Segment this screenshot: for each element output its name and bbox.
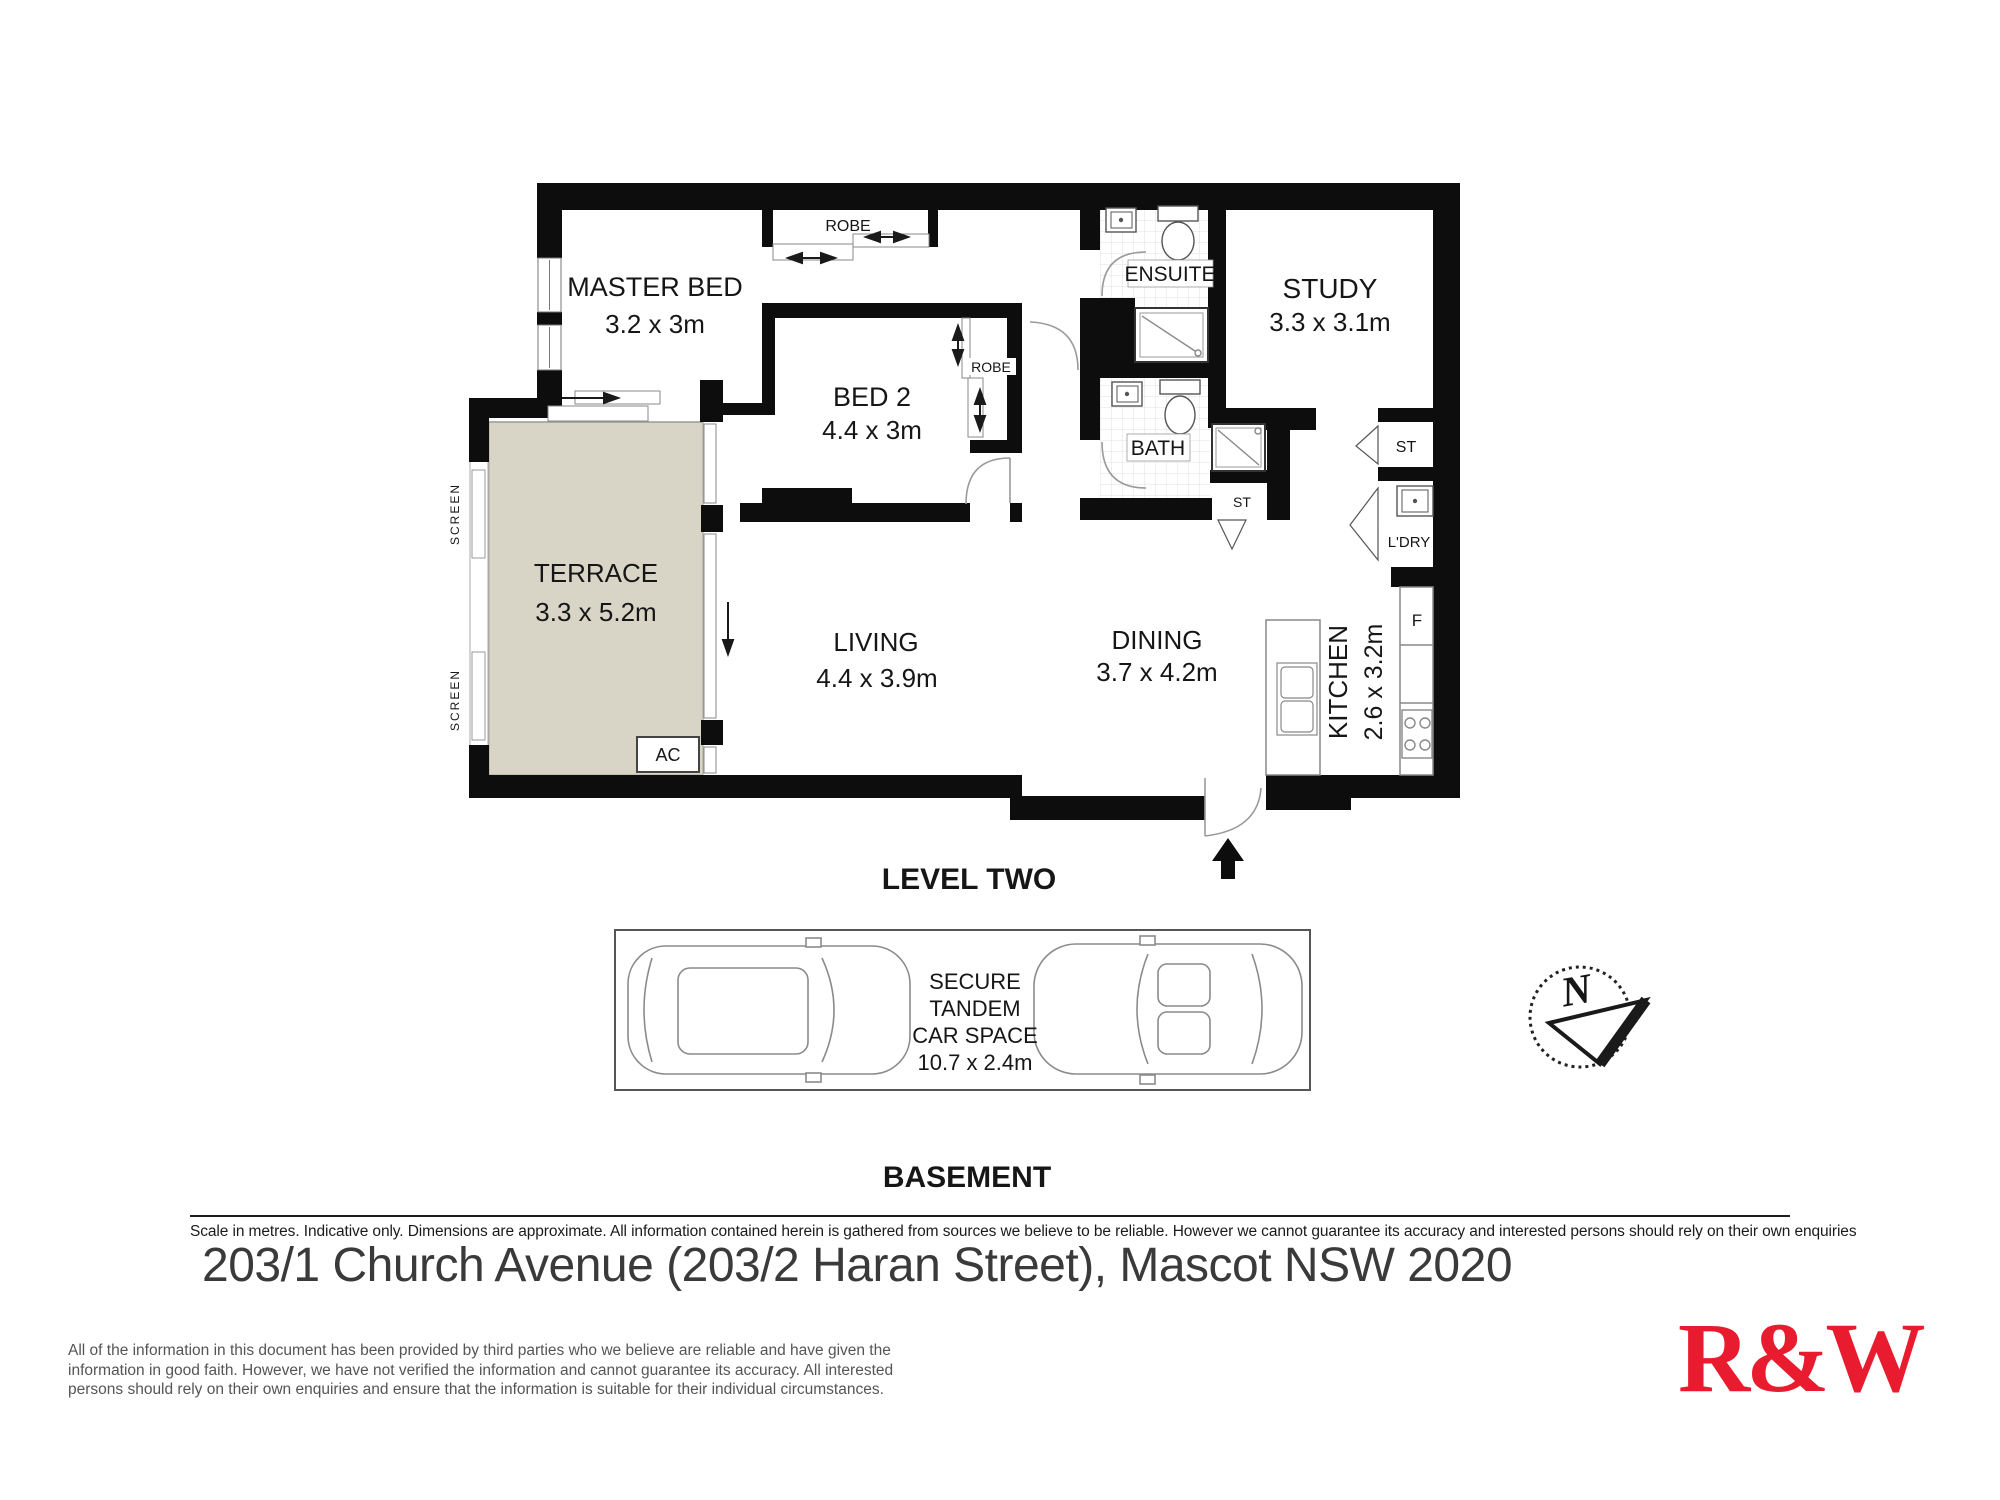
terrace-screen <box>470 462 488 745</box>
shower-icon <box>1135 308 1208 362</box>
laundry-door <box>1350 488 1378 560</box>
closet-door <box>1356 426 1378 464</box>
terrace-dims: 3.3 x 5.2m <box>535 597 656 627</box>
disclaimer-line: information in good faith. However, we h… <box>68 1361 893 1381</box>
laundry-tub-icon <box>1397 486 1433 516</box>
kitchen-dims: 2.6 x 3.2m <box>1360 624 1388 741</box>
sink-icon <box>1112 382 1142 406</box>
st-closet-label: ST <box>1396 439 1417 456</box>
terrace-name: TERRACE <box>534 558 658 588</box>
disclaimer-line: persons should rely on their own enquiri… <box>68 1380 893 1400</box>
stove-icon <box>1402 710 1432 758</box>
property-address: 203/1 Church Avenue (203/2 Haran Street)… <box>202 1238 1512 1293</box>
dining-name: DINING <box>1112 625 1203 655</box>
svg-text:SECURE: SECURE <box>929 969 1021 994</box>
kitchen-name: KITCHEN <box>1323 625 1353 739</box>
north-label: N <box>1557 966 1597 1017</box>
laundry-label: L'DRY <box>1388 534 1431 551</box>
disclaimer-line: All of the information in this document … <box>68 1341 893 1361</box>
bed2-dims: 4.4 x 3m <box>822 415 922 445</box>
sink-icon <box>1106 208 1136 232</box>
svg-text:10.7 x 2.4m: 10.7 x 2.4m <box>918 1050 1033 1075</box>
dining-dims: 3.7 x 4.2m <box>1096 657 1217 687</box>
car-icon <box>1034 936 1302 1084</box>
screen-lower-label: SCREEN <box>448 669 462 731</box>
master-bed-dims: 3.2 x 3m <box>605 309 705 339</box>
living-dims: 4.4 x 3.9m <box>816 663 937 693</box>
floorplan-page: AC MASTER BED 3.2 x 3m ROBE BED 2 4.4 x … <box>0 0 2000 1500</box>
level-title: LEVEL TWO <box>882 863 1056 896</box>
north-arrow-icon: N <box>1530 966 1646 1067</box>
bath-label: BATH <box>1131 437 1185 460</box>
svg-text:TANDEM: TANDEM <box>929 996 1020 1021</box>
storage-door <box>1218 520 1246 549</box>
robe-master-label: ROBE <box>825 218 870 235</box>
shower-icon <box>1212 424 1265 471</box>
st-hall-label: ST <box>1233 494 1251 510</box>
entry-arrow-icon <box>1212 838 1244 879</box>
disclaimer: All of the information in this document … <box>68 1341 893 1400</box>
svg-text:CAR SPACE: CAR SPACE <box>912 1023 1038 1048</box>
ac-label: AC <box>655 745 680 765</box>
divider-rule <box>190 1215 1790 1217</box>
ensuite-label: ENSUITE <box>1124 263 1215 286</box>
basement-title: BASEMENT <box>883 1161 1051 1194</box>
kitchen-island <box>1266 620 1320 775</box>
study-name: STUDY <box>1283 273 1378 304</box>
robe-bed2-label: ROBE <box>971 359 1011 375</box>
screen-upper-label: SCREEN <box>448 483 462 545</box>
car-icon <box>628 938 910 1082</box>
master-bed-name: MASTER BED <box>567 272 743 302</box>
bed2-name: BED 2 <box>833 382 911 412</box>
ac-unit: AC <box>637 737 699 772</box>
car-space: SECURE TANDEM CAR SPACE 10.7 x 2.4m <box>615 930 1310 1090</box>
study-dims: 3.3 x 3.1m <box>1269 307 1390 337</box>
fridge-label: F <box>1412 611 1422 630</box>
living-name: LIVING <box>833 627 918 657</box>
agency-logo: R&W <box>1678 1300 1922 1415</box>
